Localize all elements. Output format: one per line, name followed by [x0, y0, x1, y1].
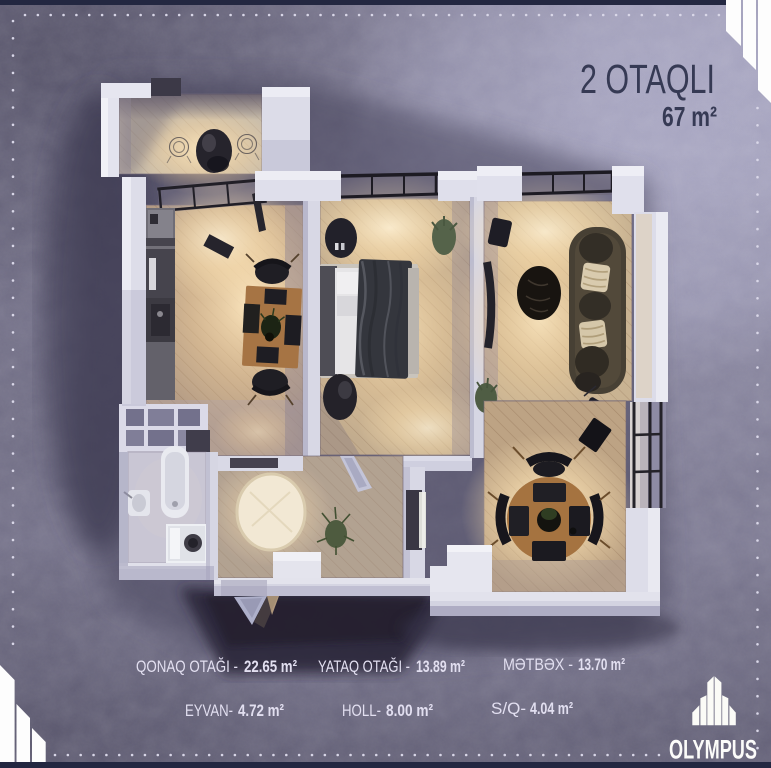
svg-text:MƏTBƏX -: MƏTBƏX - — [503, 656, 573, 674]
svg-text:S/Q-: S/Q- — [491, 700, 526, 718]
svg-text:8.00 m²: 8.00 m² — [386, 702, 433, 720]
svg-text:4.04 m²: 4.04 m² — [530, 700, 573, 718]
svg-text:YATAQ OTAĞI -: YATAQ OTAĞI - — [318, 657, 410, 676]
svg-text:OLYMPUS: OLYMPUS — [669, 735, 757, 765]
svg-text:13.89 m²: 13.89 m² — [416, 658, 465, 676]
svg-text:13.70 m²: 13.70 m² — [578, 656, 625, 674]
svg-text:EYVAN-: EYVAN- — [185, 702, 233, 720]
svg-text:2 OTAQLI: 2 OTAQLI — [580, 56, 715, 102]
svg-text:HOLL-: HOLL- — [342, 702, 381, 720]
svg-text:22.65 m²: 22.65 m² — [244, 658, 297, 676]
svg-text:QONAQ OTAĞI -: QONAQ OTAĞI - — [136, 657, 238, 676]
svg-text:4.72 m²: 4.72 m² — [238, 702, 284, 720]
svg-text:67 m²: 67 m² — [662, 101, 717, 132]
